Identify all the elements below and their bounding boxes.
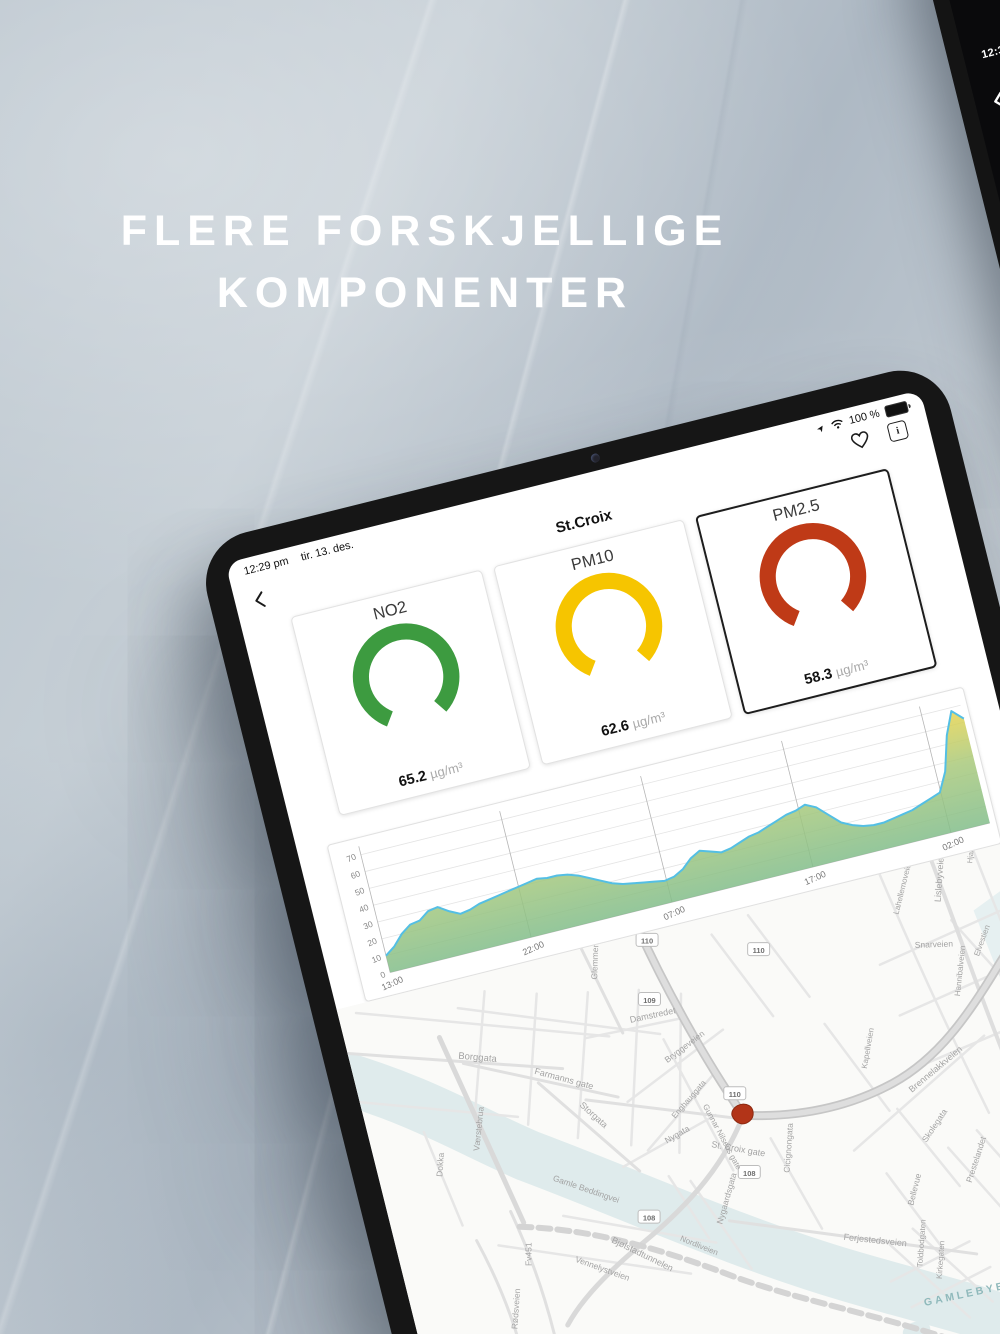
svg-text:22:00: 22:00 [521,939,546,957]
status-time: 12:29 pm [243,555,290,578]
svg-text:60: 60 [349,868,362,881]
svg-text:108: 108 [743,1169,756,1178]
svg-text:02:00: 02:00 [941,834,966,852]
status-date: tir. 13. des. [300,539,355,564]
svg-text:17:00: 17:00 [803,869,828,887]
peek-status-time: 12:34 [980,42,1000,61]
svg-text:40: 40 [358,902,371,915]
gauge-arc [330,609,483,749]
battery-icon [884,401,909,418]
front-camera-icon [590,453,601,464]
gauge-reading: 65.2 µg/m³ [335,743,528,806]
road-shield: 109 [638,993,660,1006]
gauge-value: 62.6 [600,718,631,740]
svg-text:20: 20 [366,935,379,948]
street-label: Snarveien [915,938,954,949]
gauge-reading: 62.6 µg/m³ [537,693,730,756]
gauge-arc [533,558,686,698]
headline-line-2: KOMPONENTER [50,262,800,324]
svg-text:10: 10 [370,952,383,965]
road-shield: 110 [724,1087,746,1100]
marketing-page: FLERE FORSKJELLIGE KOMPONENTER 12:34 12:… [0,0,1000,1334]
svg-text:0: 0 [379,969,387,980]
gauge-card-no2[interactable]: NO265.2 µg/m³ [290,570,530,816]
gauge-card-pm25[interactable]: PM2.558.3 µg/m³ [695,468,937,715]
road-shield: 110 [636,933,658,946]
street-label: Dokka [434,1152,446,1177]
svg-text:110: 110 [753,946,765,955]
gauge-value: 58.3 [803,666,834,688]
svg-text:30: 30 [362,919,375,932]
back-chevron-icon[interactable] [987,88,1000,112]
svg-text:110: 110 [729,1090,741,1099]
svg-text:109: 109 [643,996,656,1005]
road-shield: 110 [748,943,770,956]
tablet-device: 12:29 pm tir. 13. des. ➤ 100 % St. [195,360,1000,1334]
wifi-icon [830,418,845,431]
street-label: Fv451 [523,1242,533,1266]
gauge-value: 65.2 [397,768,428,790]
gauge-arc [737,508,890,648]
gauge-card-pm10[interactable]: PM1062.6 µg/m³ [493,519,733,765]
gauge-title: NO2 [371,598,409,625]
gauge-unit: µg/m³ [834,657,870,680]
headline-line-1: FLERE FORSKJELLIGE [50,200,800,262]
svg-text:70: 70 [345,851,358,864]
svg-text:110: 110 [641,937,653,946]
svg-text:50: 50 [353,885,366,898]
gauge-unit: µg/m³ [631,709,667,732]
gauge-unit: µg/m³ [428,759,464,782]
app-screen: 12:29 pm tir. 13. des. ➤ 100 % St. [225,390,1000,1334]
battery-percent: 100 % [848,408,881,427]
page-headline: FLERE FORSKJELLIGE KOMPONENTER [50,200,800,324]
road-shield: 108 [638,1210,660,1223]
gauge-reading: 58.3 µg/m³ [740,641,933,704]
svg-text:07:00: 07:00 [662,904,687,922]
location-arrow-icon: ➤ [816,422,828,433]
svg-text:108: 108 [643,1213,656,1222]
